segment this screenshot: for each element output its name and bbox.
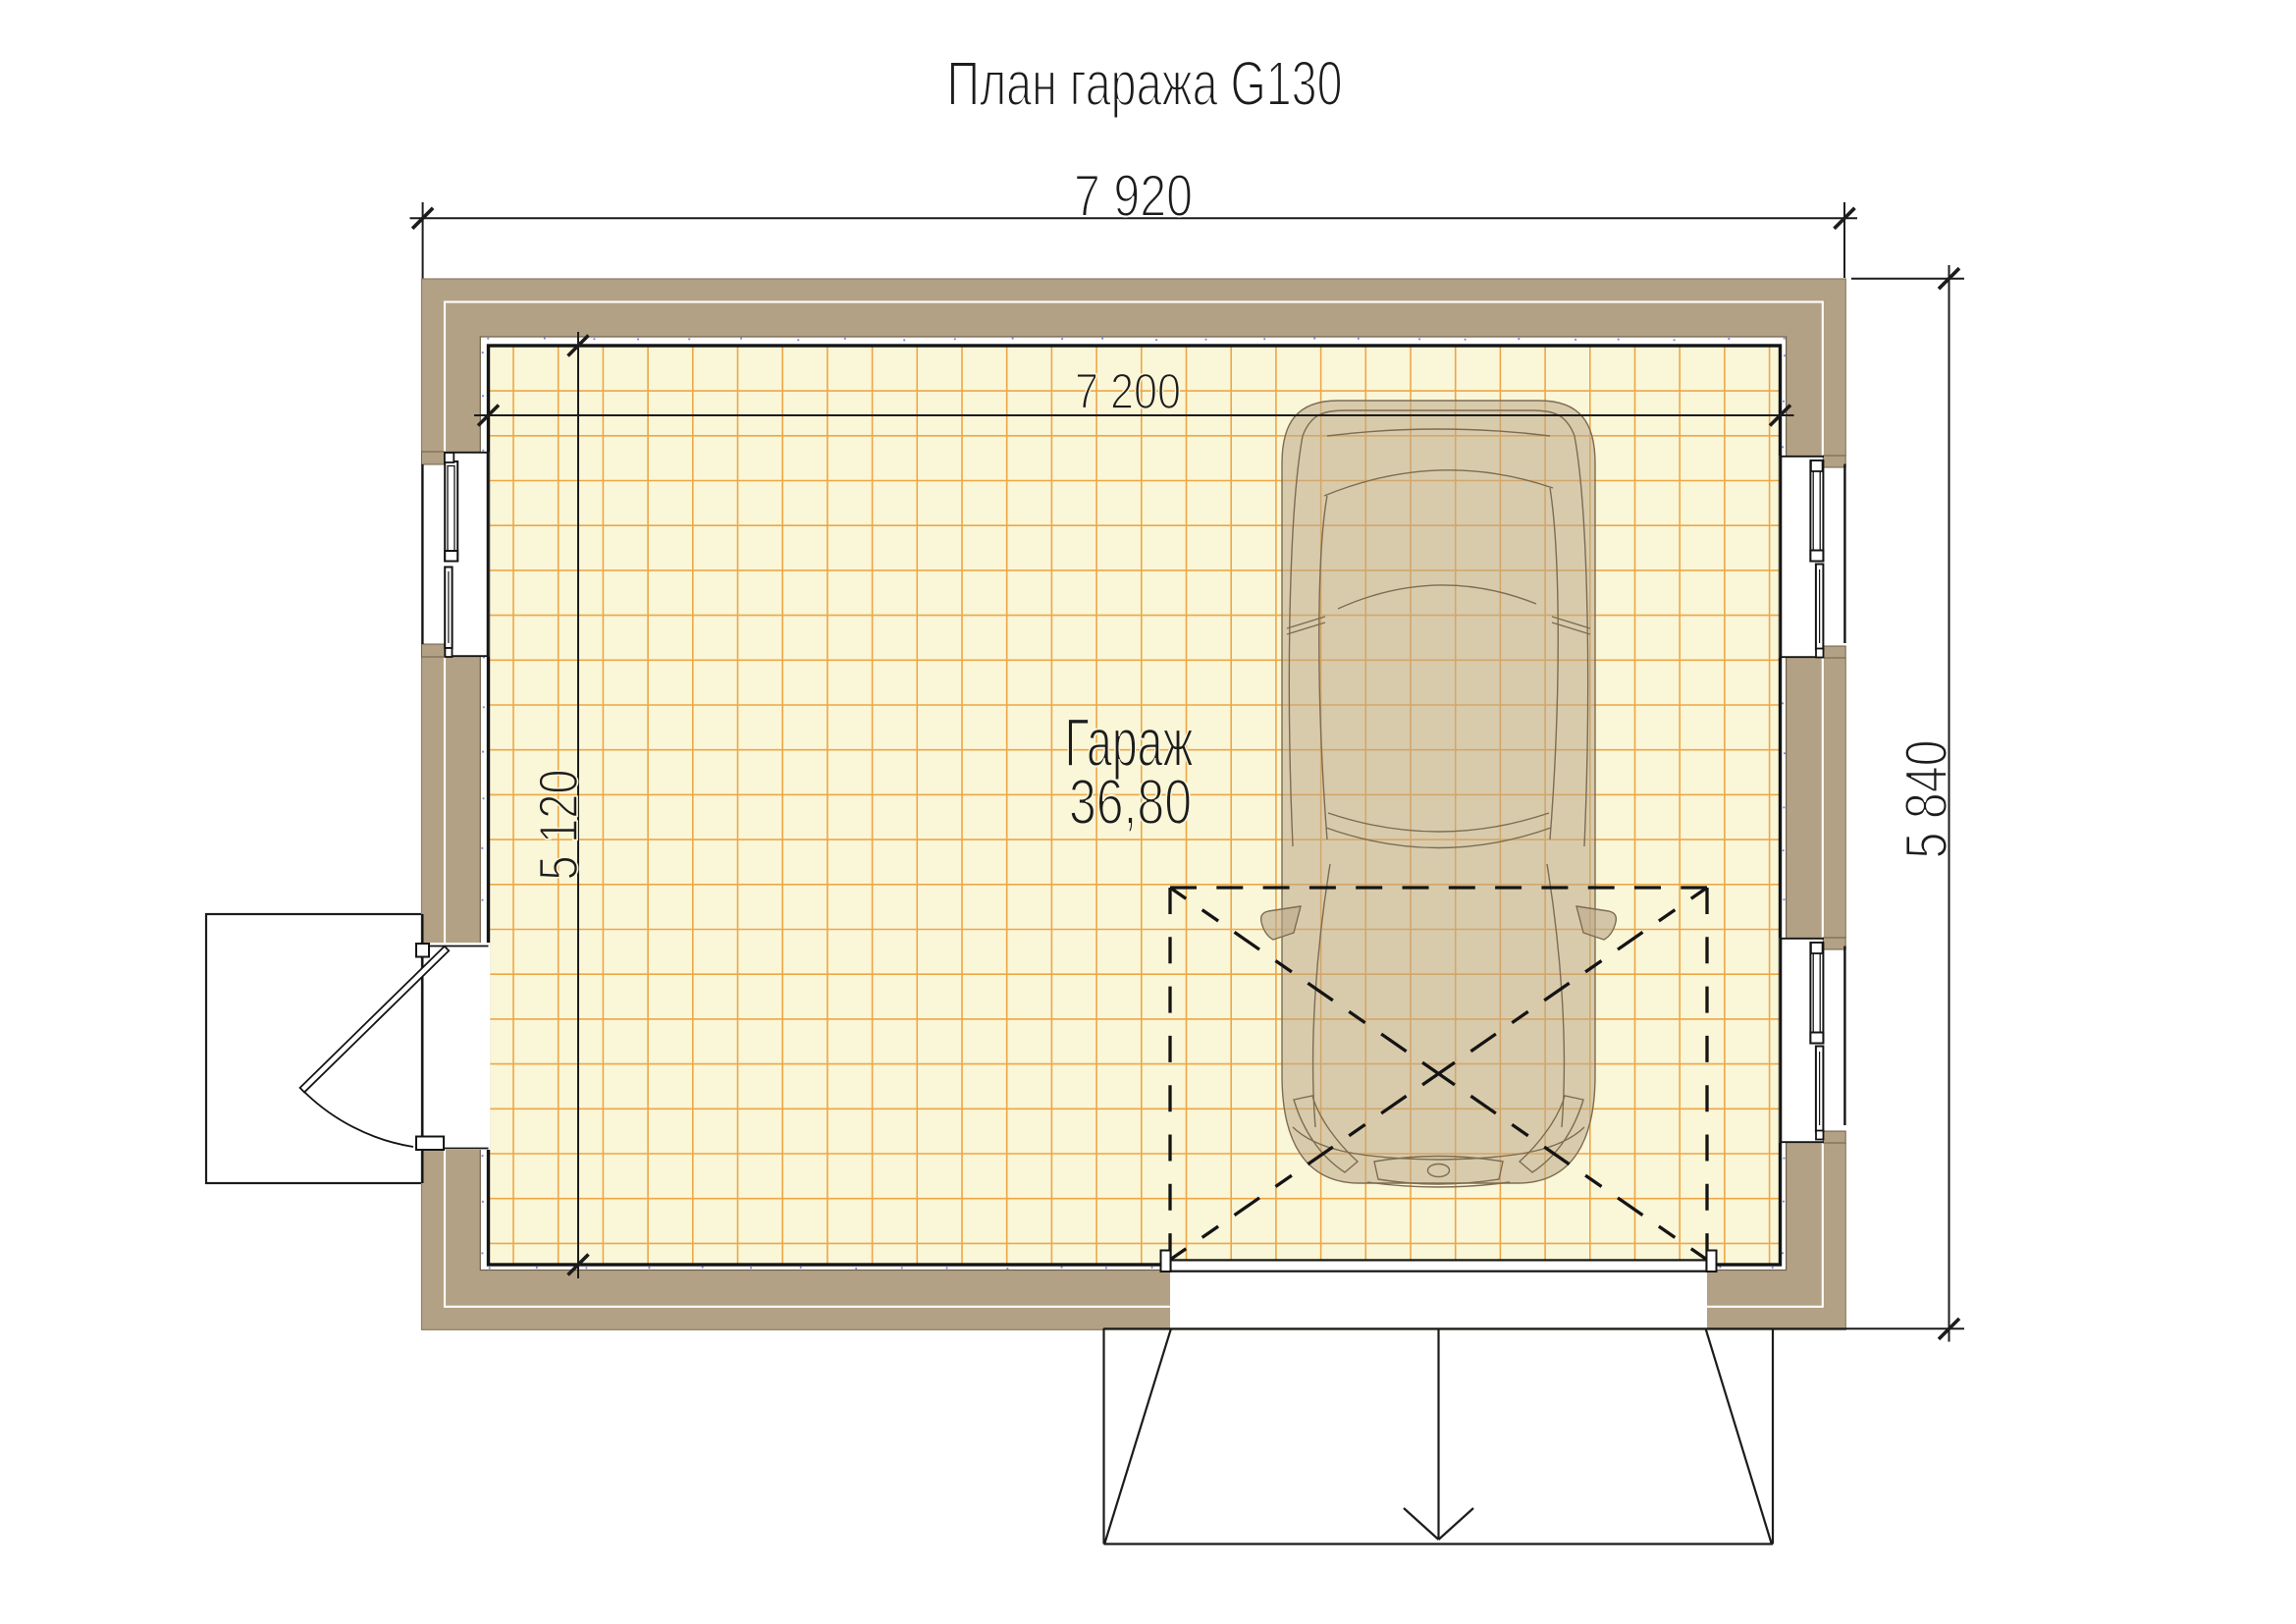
svg-text:5 120: 5 120 bbox=[527, 770, 589, 881]
svg-text:36,80: 36,80 bbox=[1069, 766, 1192, 838]
svg-text:План гаража G130: План гаража G130 bbox=[947, 48, 1343, 119]
svg-text:5 840: 5 840 bbox=[1894, 740, 1959, 859]
svg-text:7 920: 7 920 bbox=[1074, 163, 1193, 229]
svg-text:7 200: 7 200 bbox=[1075, 363, 1181, 419]
